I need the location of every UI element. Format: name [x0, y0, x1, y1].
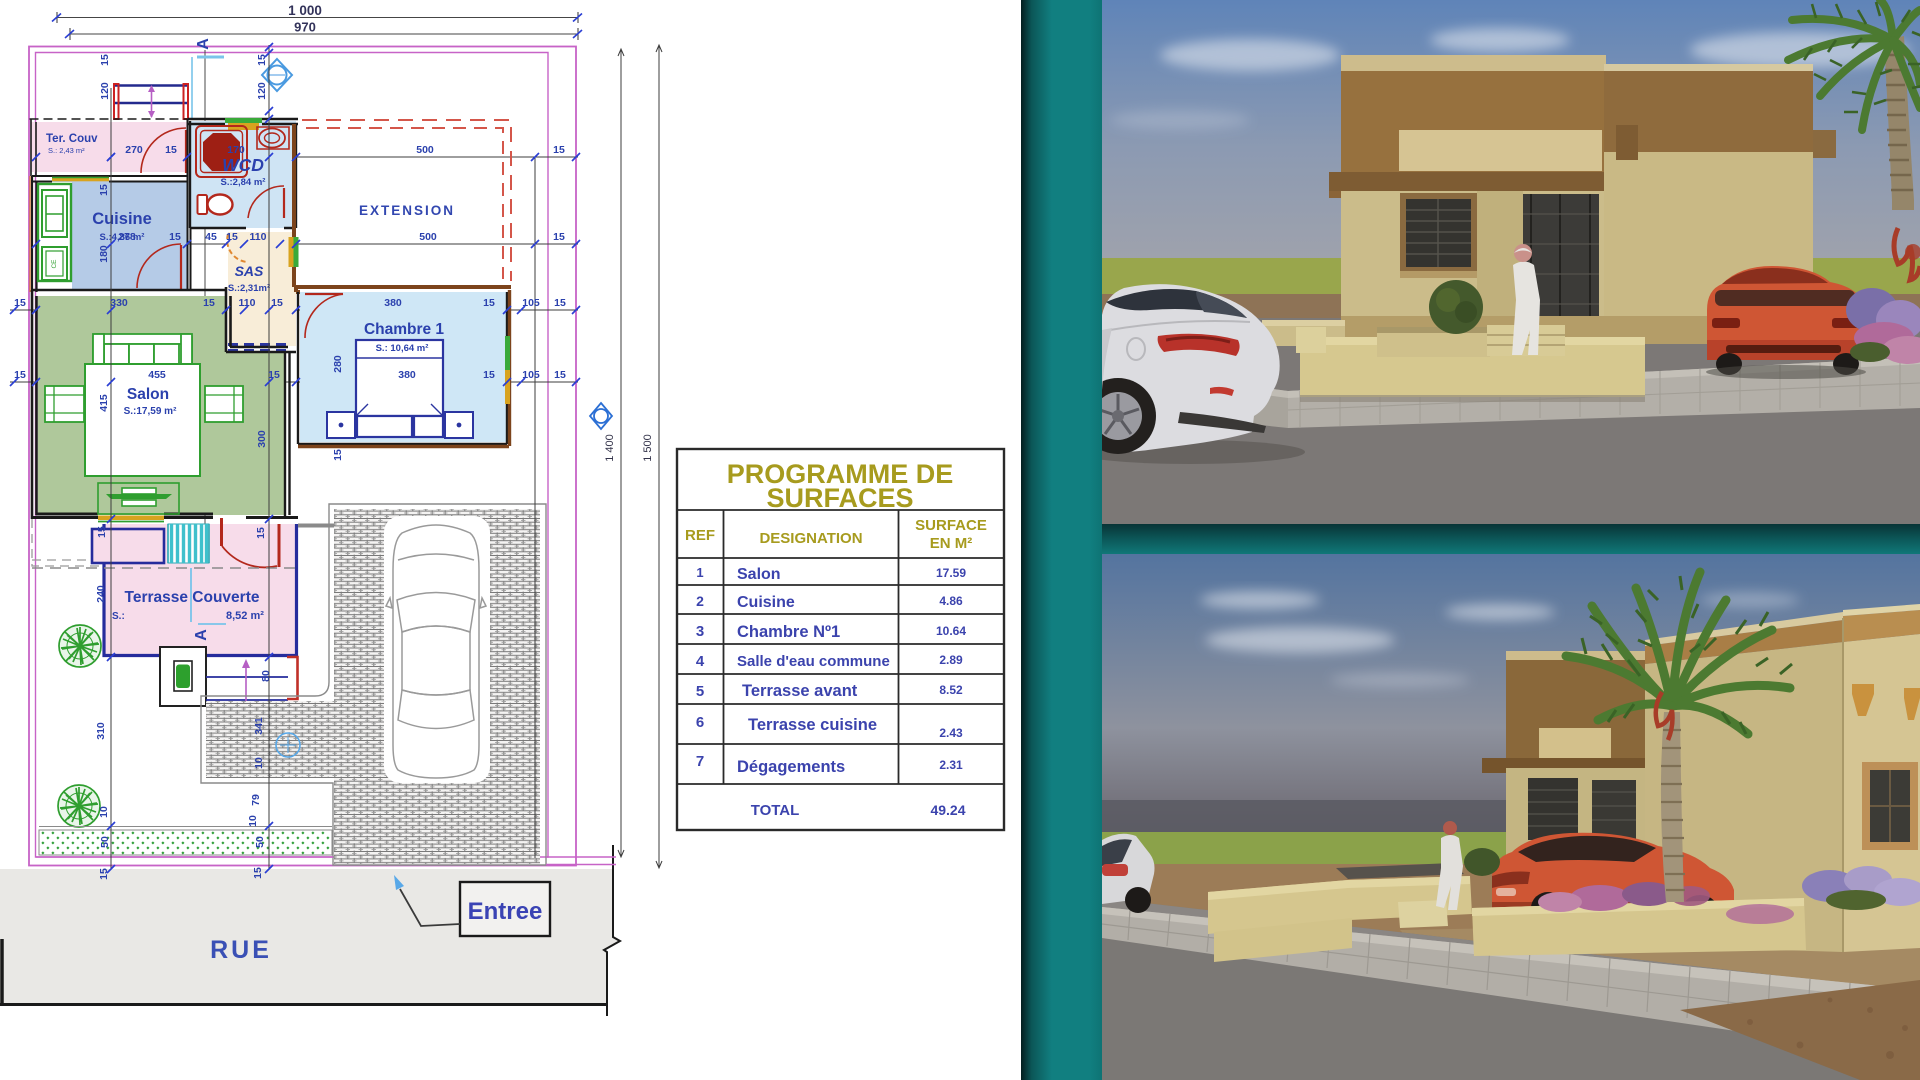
svg-text:Cuisine: Cuisine: [737, 594, 795, 611]
svg-text:Terrasse avant: Terrasse avant: [742, 682, 858, 700]
svg-text:380: 380: [384, 297, 402, 309]
svg-text:15: 15: [165, 144, 177, 156]
svg-text:10: 10: [253, 757, 265, 769]
svg-text:15: 15: [553, 231, 565, 243]
svg-text:50: 50: [254, 836, 266, 848]
svg-text:300: 300: [256, 430, 268, 448]
svg-text:Salle d'eau commune: Salle d'eau commune: [737, 653, 890, 670]
svg-text:REF: REF: [685, 527, 715, 544]
svg-text:15: 15: [252, 867, 264, 879]
svg-text:1: 1: [696, 565, 703, 580]
svg-text:6: 6: [696, 714, 704, 731]
svg-text:DESIGNATION: DESIGNATION: [759, 530, 862, 547]
svg-text:1 500: 1 500: [642, 434, 654, 462]
svg-text:970: 970: [294, 20, 316, 35]
svg-text:500: 500: [416, 144, 434, 156]
svg-text:SURFACES: SURFACES: [766, 483, 913, 513]
svg-text:10: 10: [247, 815, 259, 827]
svg-text:Salon: Salon: [737, 566, 781, 583]
svg-text:S.:17,59 m²: S.:17,59 m²: [124, 406, 177, 417]
svg-text:415: 415: [98, 394, 110, 412]
svg-text:EN M²: EN M²: [930, 535, 973, 552]
svg-text:RUE: RUE: [210, 936, 272, 964]
svg-text:170: 170: [227, 144, 245, 156]
svg-text:50: 50: [99, 836, 111, 848]
svg-text:CE: CE: [51, 259, 58, 269]
svg-text:5: 5: [696, 683, 704, 700]
svg-text:278: 278: [118, 231, 136, 243]
svg-text:79: 79: [250, 794, 262, 806]
svg-text:8,52 m²: 8,52 m²: [226, 610, 264, 622]
svg-text:3: 3: [696, 623, 704, 640]
svg-text:A: A: [195, 38, 212, 50]
svg-text:Ter. Couv: Ter. Couv: [46, 133, 98, 145]
svg-text:EXTENSION: EXTENSION: [359, 203, 455, 218]
svg-text:15: 15: [554, 369, 566, 381]
svg-text:2.89: 2.89: [939, 653, 963, 667]
svg-text:4: 4: [696, 653, 705, 670]
svg-text:S.: 10,64 m²: S.: 10,64 m²: [376, 343, 429, 354]
svg-text:270: 270: [125, 144, 143, 156]
svg-text:15: 15: [96, 526, 108, 538]
svg-text:120: 120: [256, 82, 268, 100]
svg-text:80: 80: [260, 670, 272, 682]
svg-text:15: 15: [99, 54, 111, 66]
svg-text:Chambre Nº1: Chambre Nº1: [737, 623, 840, 641]
svg-text:15: 15: [553, 144, 565, 156]
svg-text:Dégagements: Dégagements: [737, 758, 845, 776]
svg-text:2.31: 2.31: [939, 758, 963, 772]
svg-text:7: 7: [696, 753, 704, 770]
svg-text:15: 15: [255, 527, 267, 539]
svg-text:15: 15: [332, 449, 344, 461]
svg-text:TOTAL: TOTAL: [751, 802, 800, 819]
svg-text:Entree: Entree: [468, 898, 543, 925]
svg-text:500: 500: [419, 231, 437, 243]
svg-text:10: 10: [98, 806, 110, 818]
svg-text:8.52: 8.52: [939, 683, 963, 697]
svg-text:49.24: 49.24: [930, 802, 965, 818]
svg-text:S.: 2,43 m²: S.: 2,43 m²: [48, 146, 85, 155]
svg-text:10.64: 10.64: [936, 624, 966, 638]
svg-text:17.59: 17.59: [936, 566, 966, 580]
svg-text:280: 280: [332, 355, 344, 373]
svg-text:15: 15: [203, 297, 215, 309]
svg-text:SURFACE: SURFACE: [915, 517, 987, 534]
svg-text:310: 310: [95, 722, 107, 740]
svg-text:1 000: 1 000: [288, 3, 322, 18]
svg-text:1 400: 1 400: [604, 434, 616, 462]
svg-text:380: 380: [398, 369, 416, 381]
svg-text:Terrasse Couverte: Terrasse Couverte: [125, 589, 260, 606]
svg-text:15: 15: [169, 231, 181, 243]
svg-text:2.43: 2.43: [939, 726, 963, 740]
svg-text:15: 15: [483, 369, 495, 381]
svg-text:15: 15: [98, 184, 110, 196]
svg-text:15: 15: [98, 868, 110, 880]
svg-text:S.:2,31m²: S.:2,31m²: [228, 283, 270, 294]
svg-text:120: 120: [99, 82, 111, 100]
svg-text:A: A: [193, 629, 210, 641]
svg-text:Chambre 1: Chambre 1: [364, 321, 444, 338]
svg-text:45: 45: [205, 231, 217, 243]
svg-text:Cuisine: Cuisine: [92, 210, 152, 228]
svg-text:S.:2,84 m²: S.:2,84 m²: [221, 177, 266, 188]
svg-text:WCD: WCD: [222, 155, 264, 175]
svg-text:Salon: Salon: [127, 386, 169, 403]
svg-text:4.86: 4.86: [939, 594, 963, 608]
svg-text:2: 2: [696, 593, 704, 609]
svg-text:110: 110: [250, 231, 267, 243]
svg-text:240: 240: [95, 585, 107, 603]
svg-text:SAS: SAS: [235, 263, 264, 279]
svg-text:455: 455: [148, 369, 166, 381]
svg-text:15: 15: [554, 297, 566, 309]
svg-text:Terrasse cuisine: Terrasse cuisine: [748, 716, 877, 734]
svg-text:341: 341: [253, 717, 265, 735]
svg-text:S.:: S.:: [112, 611, 125, 622]
svg-text:15: 15: [483, 297, 495, 309]
svg-text:15: 15: [268, 369, 280, 381]
